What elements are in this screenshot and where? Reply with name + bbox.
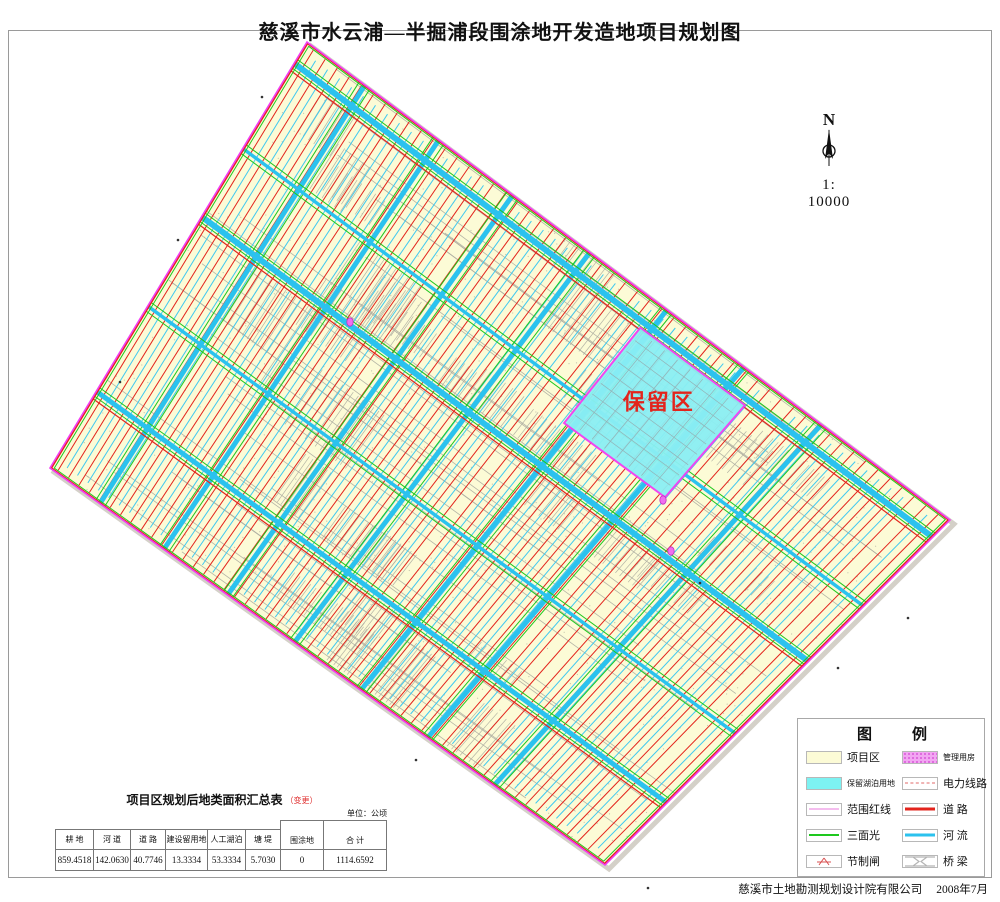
area-table-grid: 耕 地 859.4518 河 道 142.0630 道 路 40.7746 建设…	[55, 820, 389, 871]
management-house-swatch	[902, 751, 938, 764]
reserved-lake-swatch	[806, 777, 842, 790]
boundary-redline-swatch	[806, 803, 842, 816]
column-value: 859.4518	[56, 850, 93, 870]
legend-item-lined-channel: 三面光	[806, 822, 902, 848]
legend-title: 图 例	[806, 722, 978, 744]
column-value: 0	[281, 850, 323, 870]
column-value: 5.7030	[246, 850, 280, 870]
legend-items: 项目区 管理用房 保留湖泊用地 电力线路 范围红线 道 路 三面光 河 流	[806, 744, 978, 874]
legend-item-river: 河 流	[902, 822, 980, 848]
legend-title-left: 图	[857, 723, 872, 744]
table-column: 塘 堤 5.7030	[245, 829, 281, 871]
road-swatch	[902, 803, 938, 816]
table-column: 人工湖泊 53.3334	[207, 829, 246, 871]
legend-item-label: 三面光	[847, 827, 880, 843]
column-header: 合 计	[324, 821, 386, 850]
column-header: 人工湖泊	[208, 830, 245, 850]
lined-channel-swatch	[806, 829, 842, 842]
control-gate-icon	[806, 855, 842, 868]
legend-item-label: 保留湖泊用地	[847, 778, 895, 789]
bridge-icon	[902, 855, 938, 868]
legend-title-right: 例	[912, 723, 927, 744]
column-header: 道 路	[131, 830, 165, 850]
river-swatch	[902, 829, 938, 842]
column-value: 13.3334	[166, 850, 207, 870]
reserved-area-label: 保留区	[622, 390, 695, 415]
area-summary-table: 项目区规划后地类面积汇总表 （变更） 单位：公顷 耕 地 859.4518 河 …	[55, 791, 389, 871]
area-table-unit-note: 单位：公顷	[55, 808, 387, 819]
compass: N 1: 10000	[799, 112, 859, 211]
page-title: 慈溪市水云浦—半掘浦段围涂地开发造地项目规划图	[0, 16, 1000, 45]
power-line-swatch	[902, 777, 938, 790]
table-column: 道 路 40.7746	[130, 829, 166, 871]
legend-item-reserved-lake: 保留湖泊用地	[806, 770, 902, 796]
column-value: 1114.6592	[324, 850, 386, 870]
legend-item-label: 河 流	[943, 827, 968, 843]
legend-item-label: 范围红线	[847, 801, 891, 817]
legend-item-control-gate: 节制闸	[806, 848, 902, 874]
legend-box: 图 例 项目区 管理用房 保留湖泊用地 电力线路 范围红线 道 路	[797, 718, 985, 877]
legend-item-management-house: 管理用房	[902, 744, 980, 770]
column-header: 耕 地	[56, 830, 93, 850]
table-column: 耕 地 859.4518	[55, 829, 94, 871]
north-label: N	[799, 112, 859, 128]
north-arrow-icon	[819, 128, 839, 170]
column-header: 河 道	[94, 830, 130, 850]
column-header: 塘 堤	[246, 830, 280, 850]
table-column: 围涂地 0	[280, 820, 324, 871]
table-column: 河 道 142.0630	[93, 829, 131, 871]
column-header: 围涂地	[281, 821, 323, 850]
legend-item-project-area: 项目区	[806, 744, 902, 770]
legend-item-label: 项目区	[847, 749, 880, 765]
project-area-swatch	[806, 751, 842, 764]
legend-item-label: 道 路	[943, 801, 968, 817]
legend-item-power-line: 电力线路	[902, 770, 980, 796]
map-date: 2008年7月	[936, 884, 988, 896]
table-column: 建设留用地 13.3334	[165, 829, 208, 871]
company-name: 慈溪市土地勘测规划设计院有限公司	[738, 884, 922, 896]
legend-item-label: 电力线路	[943, 775, 987, 791]
legend-item-label: 节制闸	[847, 853, 880, 869]
column-value: 53.3334	[208, 850, 245, 870]
legend-item-boundary-redline: 范围红线	[806, 796, 902, 822]
scale-label: 1: 10000	[799, 177, 859, 211]
column-value: 40.7746	[131, 850, 165, 870]
area-table-title-note: （变更）	[286, 796, 318, 805]
legend-item-label: 桥 梁	[943, 853, 968, 869]
legend-item-label: 管理用房	[943, 752, 975, 763]
legend-item-bridge: 桥 梁	[902, 848, 980, 874]
table-column: 合 计 1114.6592	[323, 820, 387, 871]
column-value: 142.0630	[94, 850, 130, 870]
column-header: 建设留用地	[166, 830, 207, 850]
legend-item-road: 道 路	[902, 796, 980, 822]
area-table-title: 项目区规划后地类面积汇总表	[126, 793, 282, 807]
footer-credit: 慈溪市土地勘测规划设计院有限公司2008年7月	[738, 881, 988, 897]
